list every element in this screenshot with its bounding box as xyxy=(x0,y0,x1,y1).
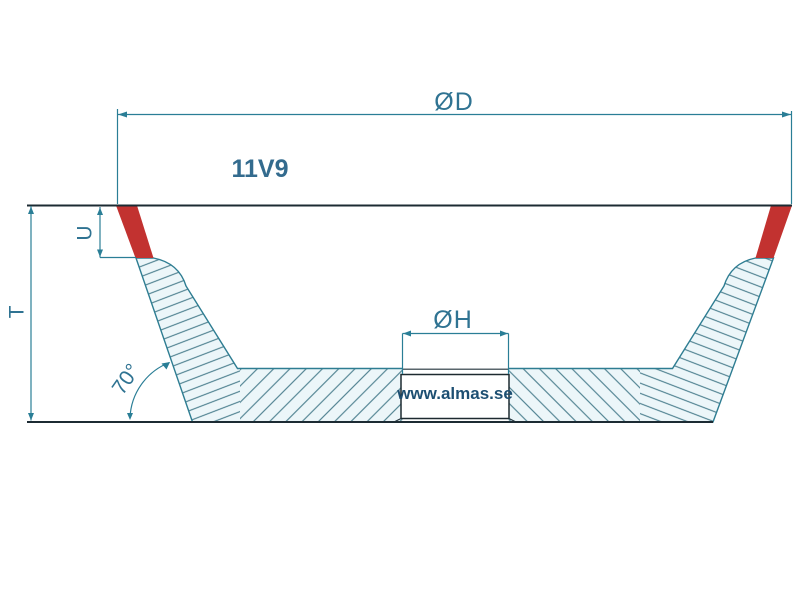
t-arrow-top xyxy=(28,207,34,215)
wall-angle-label: 70° xyxy=(108,360,145,399)
watermark-text: www.almas.se xyxy=(396,384,513,403)
wall-angle-dimension: 70° xyxy=(108,360,170,420)
rim-depth-label: U xyxy=(74,225,97,240)
total-height-label: T xyxy=(6,305,29,318)
u-arrow-bottom xyxy=(97,250,103,258)
od-arrow-right xyxy=(782,112,791,118)
left-wall-hatch xyxy=(118,248,240,430)
left-abrasive-segment xyxy=(116,206,154,259)
model-type-label: 11V9 xyxy=(231,155,288,183)
od-arrow-left xyxy=(118,112,127,118)
right-abrasive-segment xyxy=(756,206,793,259)
t-arrow-bottom xyxy=(28,413,34,421)
total-height-dimension: T xyxy=(6,206,34,421)
oh-arrow-right xyxy=(500,331,508,337)
oh-arrow-left xyxy=(403,331,411,337)
drawing-area: www.almas.se ØD 11V9 U T ØH xyxy=(0,0,800,600)
u-arrow-top xyxy=(97,208,103,216)
right-wall-hatch xyxy=(640,248,782,430)
outer-diameter-label: ØD xyxy=(434,88,474,116)
bore-diameter-label: ØH xyxy=(433,306,473,334)
angle-arrow-bottom xyxy=(127,413,133,420)
outer-diameter-dimension: ØD xyxy=(118,88,792,204)
grinding-wheel-diagram: www.almas.se ØD 11V9 U T ØH xyxy=(0,0,800,600)
